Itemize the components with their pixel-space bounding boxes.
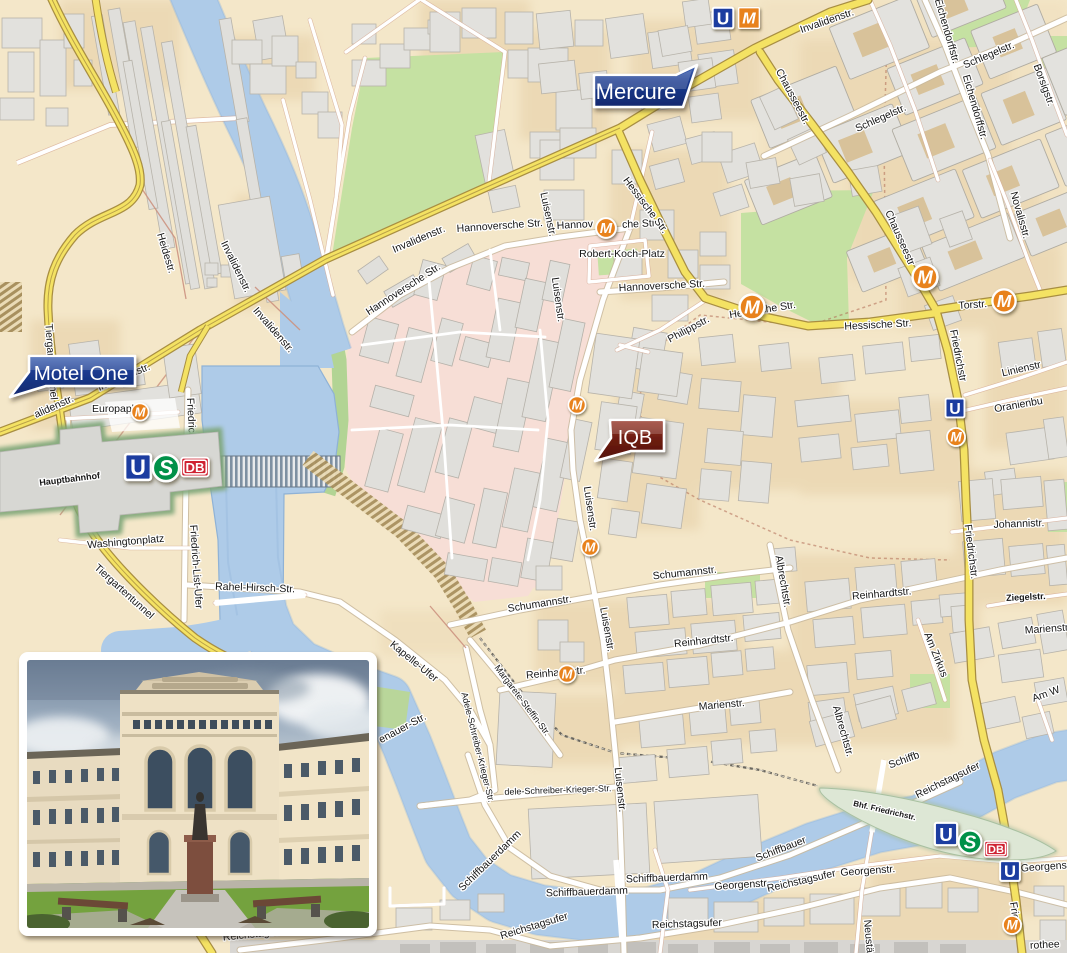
svg-text:Reichstagsufer: Reichstagsufer [652, 917, 723, 931]
svg-text:Robert-Koch-Platz: Robert-Koch-Platz [579, 248, 665, 260]
svg-text:Mercure: Mercure [596, 79, 677, 104]
svg-text:IQB: IQB [618, 427, 652, 449]
svg-text:Hannov: Hannov [556, 218, 594, 232]
svg-text:Motel One: Motel One [34, 362, 129, 385]
svg-text:Ziegelstr.: Ziegelstr. [1006, 591, 1046, 603]
svg-text:Johannistr.: Johannistr. [993, 517, 1044, 531]
svg-text:Torstr.: Torstr. [958, 298, 987, 312]
svg-text:rothee: rothee [1030, 938, 1061, 952]
